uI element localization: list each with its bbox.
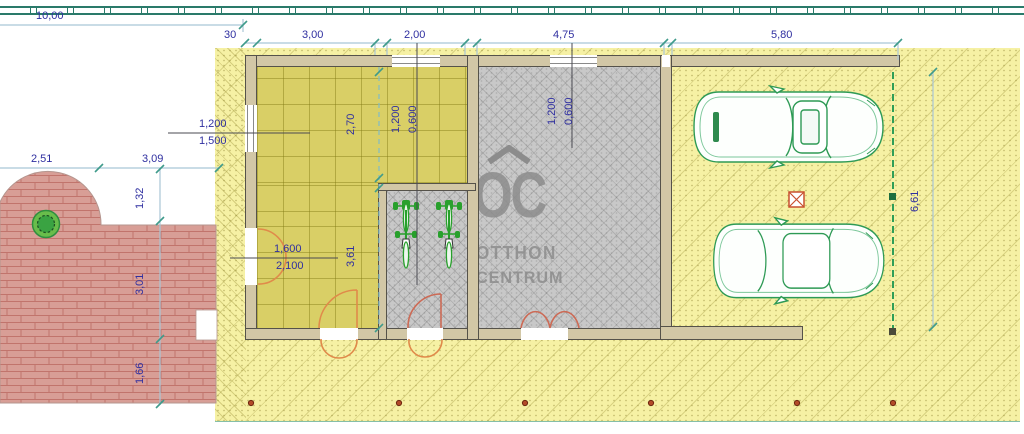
watermark-logo: OC <box>473 167 545 223</box>
wall-carport-bottom <box>660 326 803 340</box>
wall-bottom <box>245 328 672 340</box>
dim-chain-300: 3,00 <box>302 29 323 41</box>
window-top-1 <box>392 55 440 67</box>
dim-right-661: 6,61 <box>909 191 921 212</box>
watermark-brand-line2: CENTRUM <box>476 268 563 288</box>
dim-chain-200: 2,00 <box>404 29 425 41</box>
dim-room-361: 3,61 <box>345 246 357 267</box>
dim-chain-475: 4,75 <box>553 29 574 41</box>
watermark-brand-line1: OTTHON <box>476 243 557 264</box>
door-opening-living <box>320 328 358 340</box>
plot-hatch-strip <box>215 48 246 421</box>
dim-left-251: 2,51 <box>31 153 52 165</box>
wall-divider-living-utility <box>467 55 479 340</box>
window-left <box>245 105 257 152</box>
paved-terrace <box>0 171 217 403</box>
dim-overall-top: 10,00 <box>36 10 64 22</box>
dim-room-270: 2,70 <box>345 114 357 135</box>
door-opening-bike <box>407 328 443 340</box>
label-top-window2-sill: 0,600 <box>563 97 575 125</box>
label-left-door-height: 2,100 <box>276 260 304 272</box>
window-top-2 <box>550 55 597 67</box>
wall-utility-right <box>660 55 672 340</box>
door-opening-left <box>245 228 257 285</box>
bike-storage-floor <box>387 191 467 328</box>
label-left-window-width: 1,200 <box>199 118 227 130</box>
dim-left-132: 1,32 <box>134 188 146 209</box>
label-top-window1-width: 1,200 <box>390 105 402 133</box>
wall-gap-carport <box>662 55 670 67</box>
tree-icon <box>33 211 60 238</box>
dim-left-166: 1,66 <box>134 363 146 384</box>
wall-left <box>245 55 257 340</box>
label-top-window2-width: 1,200 <box>546 97 558 125</box>
door-opening-utility <box>521 328 568 340</box>
label-top-window1-sill: 0,600 <box>407 105 419 133</box>
living-room-floor-lower <box>257 183 378 328</box>
fence-line <box>0 6 1024 15</box>
dim-left-309: 3,09 <box>142 153 163 165</box>
dim-chain-580: 5,80 <box>771 29 792 41</box>
wall-bike-top <box>378 183 476 191</box>
floor-plan-canvas: OC OTTHON CENTRUM <box>0 0 1024 434</box>
wall-bike-left <box>378 183 387 340</box>
dim-chain-30: 30 <box>224 29 236 41</box>
label-left-door-width: 1,600 <box>274 243 302 255</box>
label-left-window-sill: 1,500 <box>199 135 227 147</box>
living-room-floor <box>257 67 467 183</box>
dim-left-301: 3,01 <box>134 274 146 295</box>
